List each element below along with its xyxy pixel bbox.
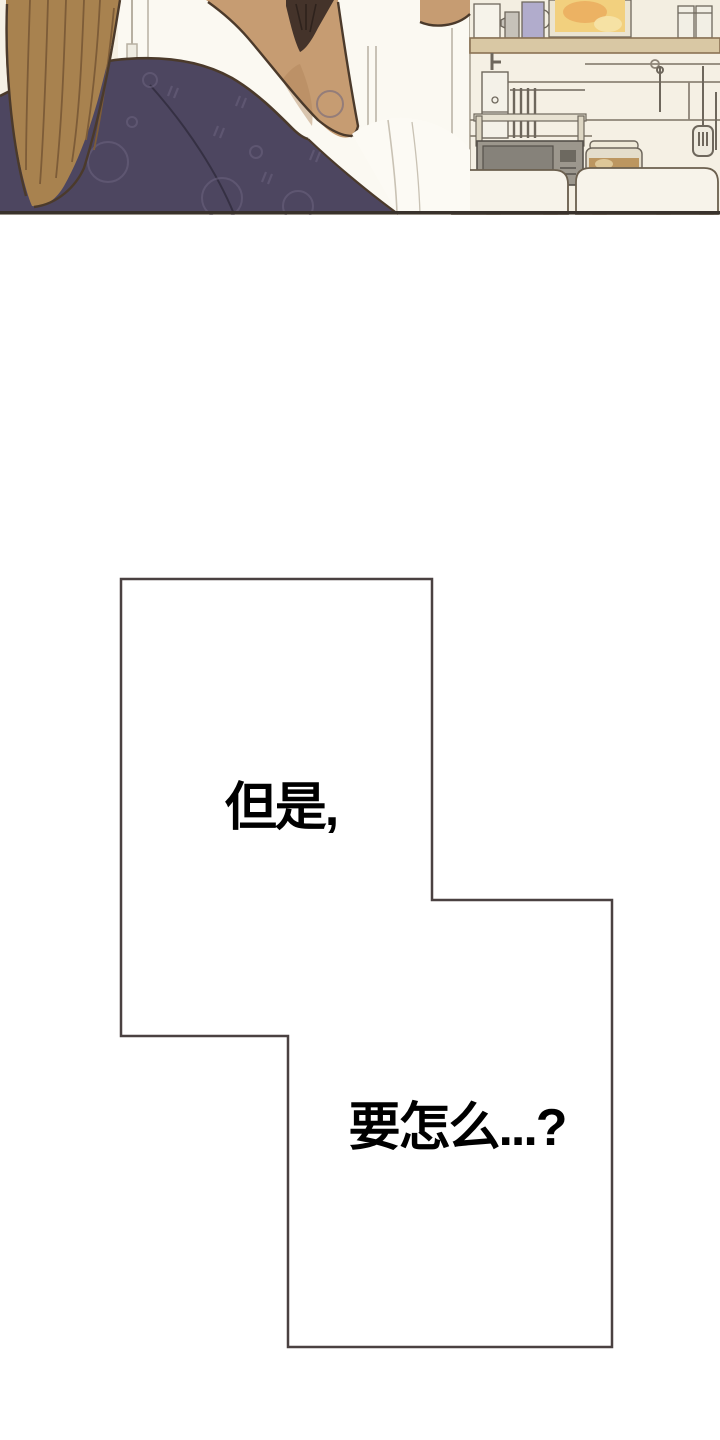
pitcher [522,2,544,38]
appliance-tower [482,72,508,138]
canister [696,6,712,38]
bubble-text-line2: 要怎么...? [295,1101,619,1156]
speech-bubble [0,560,720,1360]
chairs [452,168,718,214]
framed-picture [549,0,631,37]
panel-border [0,211,720,215]
chair-back [576,168,718,214]
white-box [474,4,500,38]
canister [678,6,694,38]
bubble-outline [121,579,612,1347]
comic-page: 但是, 要怎么...? [0,0,720,1440]
panel-illustration [0,0,720,215]
microwave-screen [560,150,576,162]
bubble-text-line1: 但是, [131,781,431,836]
